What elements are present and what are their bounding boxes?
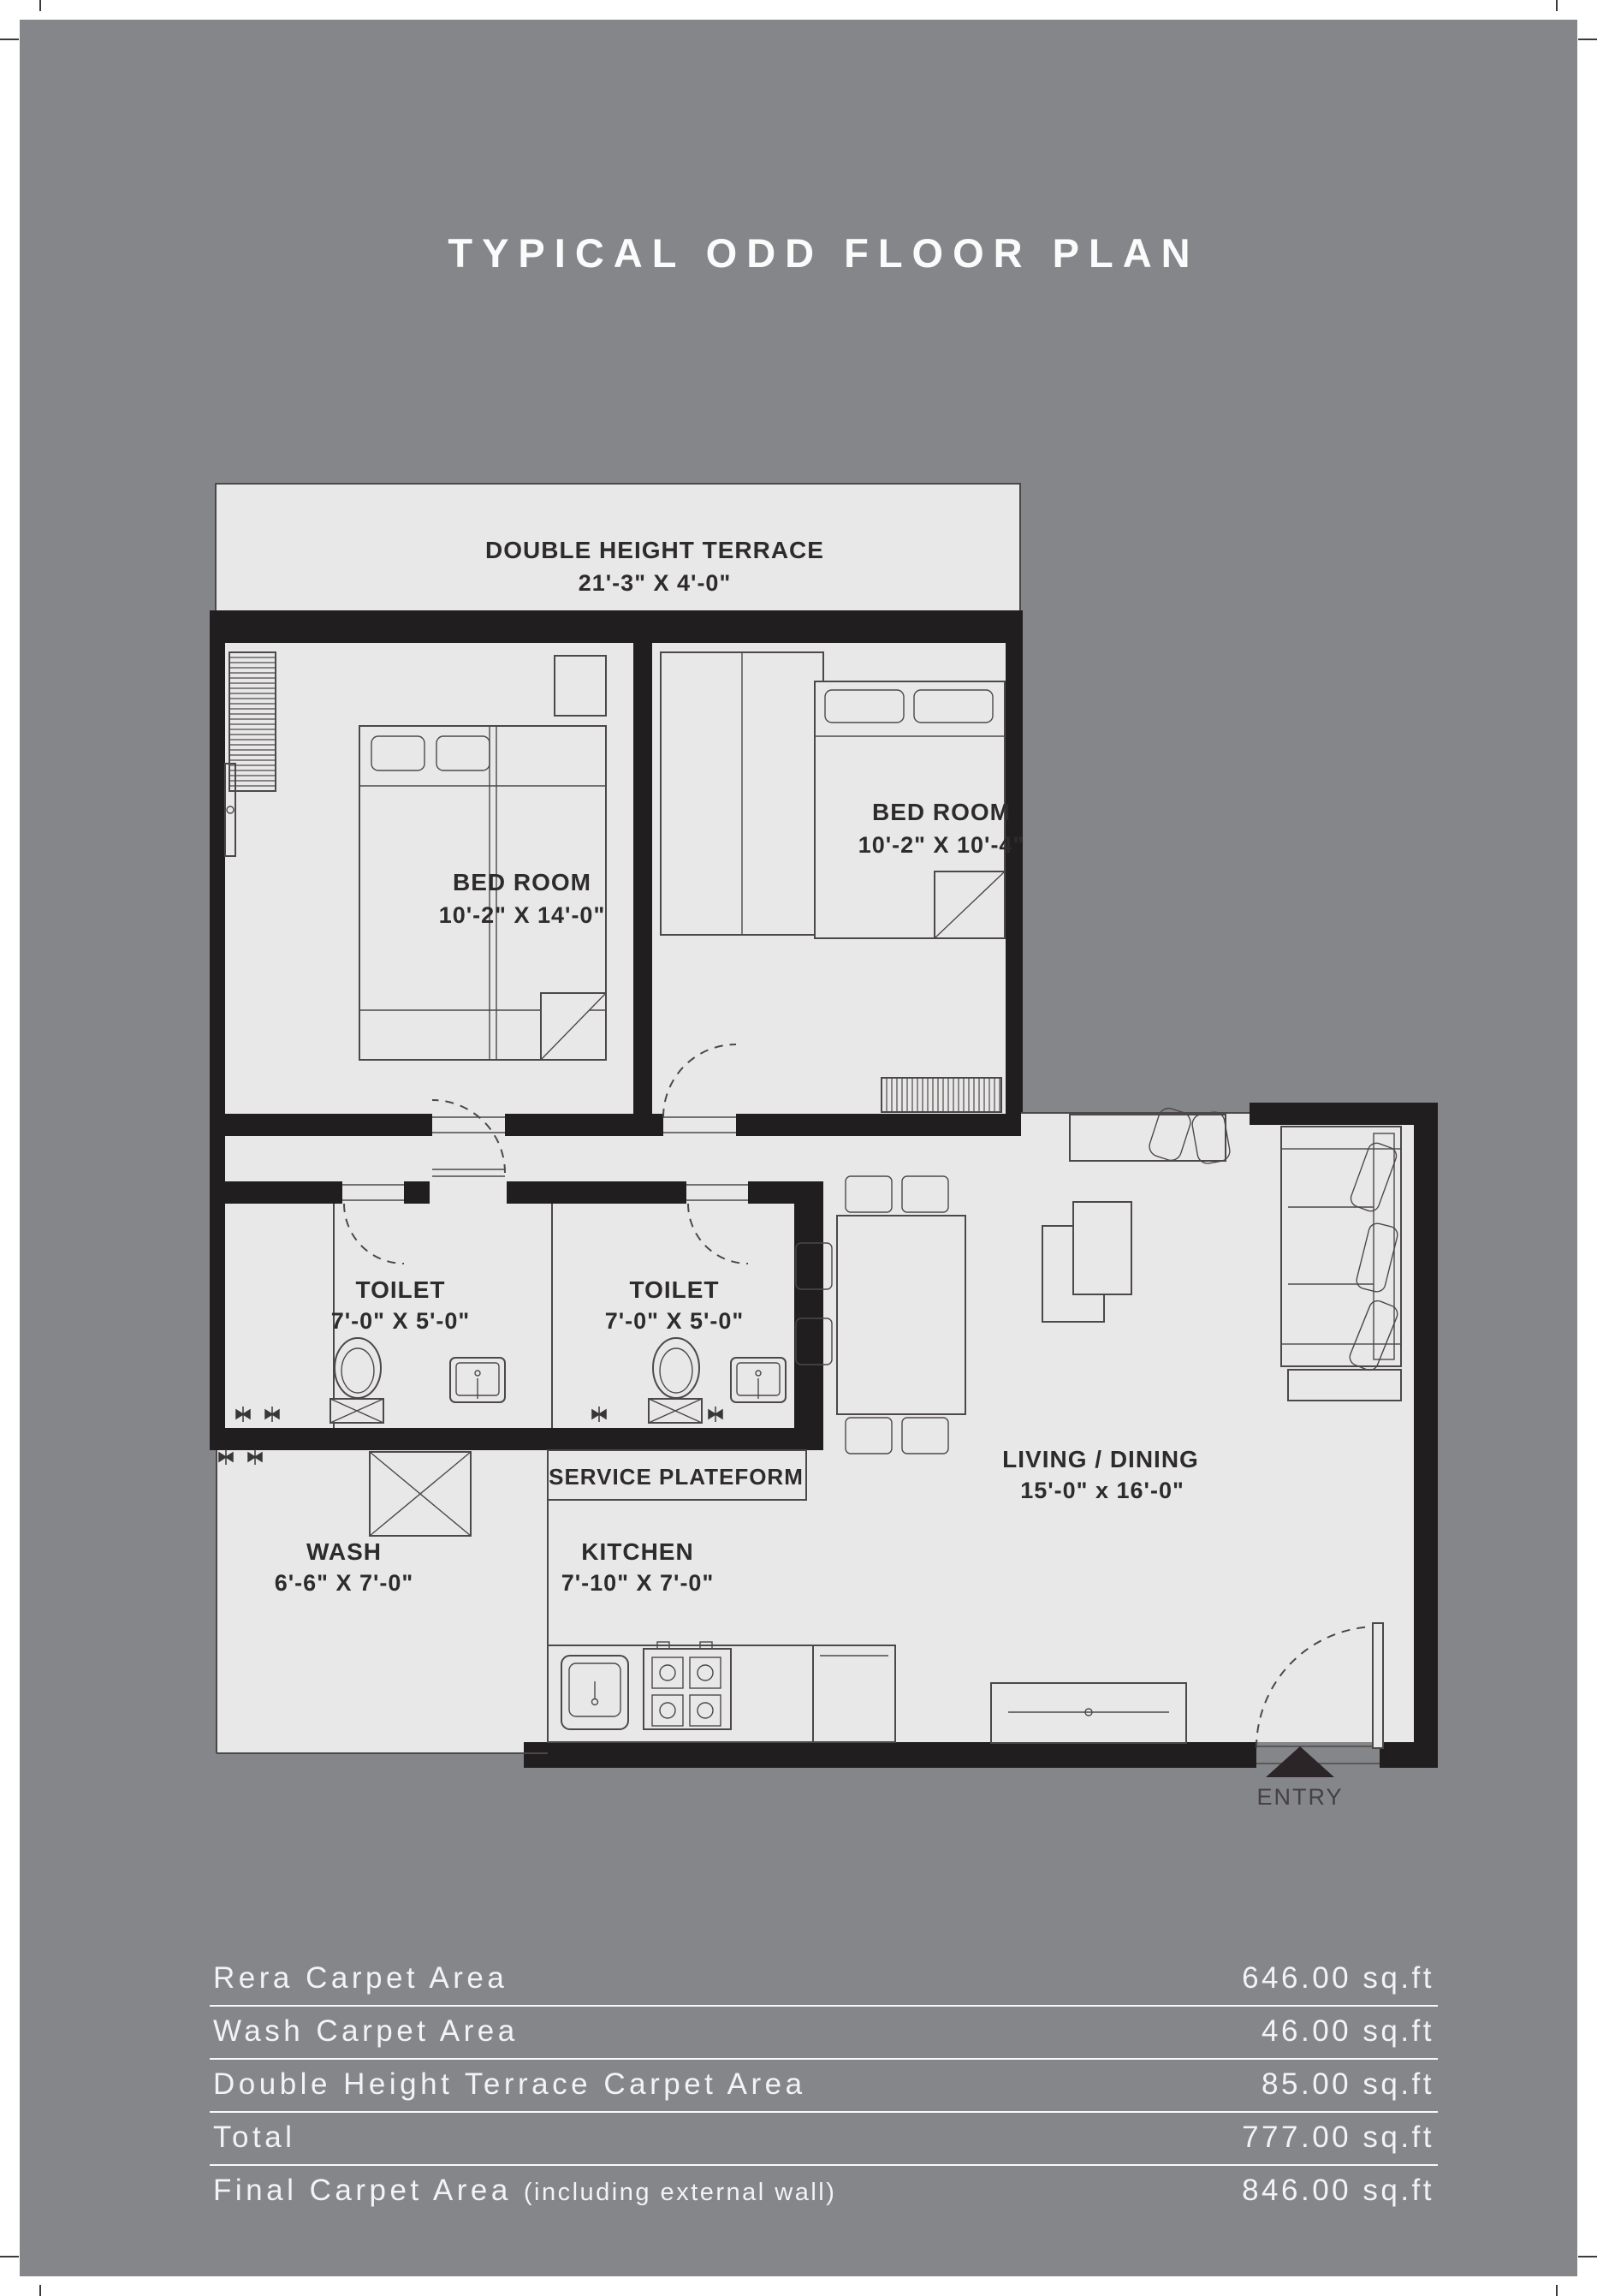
bedroom-left-dims: 10'-2" X 14'-0" [439, 902, 606, 928]
row-value: 85.00 sq.ft [1262, 2067, 1434, 2102]
table-row: Wash Carpet Area 46.00 sq.ft [210, 2007, 1438, 2060]
page-title: TYPICAL ODD FLOOR PLAN [210, 229, 1438, 277]
living-dining-dims: 15'-0" x 16'-0" [1020, 1478, 1184, 1503]
toilet-left-dims: 7'-0" X 5'-0" [331, 1308, 471, 1334]
crop-mark [1556, 0, 1558, 11]
crop-mark [1578, 2256, 1597, 2257]
crop-mark [39, 0, 41, 11]
floor-plan-page: { "title": "TYPICAL ODD FLOOR PLAN", "co… [0, 0, 1597, 2296]
wash-label: WASH [306, 1538, 382, 1565]
row-label: Final Carpet Area(including external wal… [213, 2174, 836, 2208]
row-label: Total [213, 2121, 295, 2155]
crop-mark [39, 2285, 41, 2296]
crop-mark [0, 39, 19, 40]
crop-mark [1556, 2285, 1558, 2296]
service-platform-label: SERVICE PLATEFORM [549, 1464, 804, 1490]
toilet-right-label: TOILET [629, 1276, 719, 1303]
living-dining-label: LIVING / DINING [1002, 1446, 1199, 1472]
entry-arrow-icon [1266, 1746, 1334, 1777]
console [1070, 1115, 1226, 1161]
sofa [1281, 1127, 1401, 1401]
table-row: Final Carpet Area(including external wal… [210, 2166, 1438, 2217]
nightstand-left-bedroom [555, 656, 606, 716]
wash-dims: 6'-6" X 7'-0" [275, 1570, 414, 1596]
row-value: 46.00 sq.ft [1262, 2014, 1434, 2049]
row-label: Double Height Terrace Carpet Area [213, 2067, 806, 2102]
table-row: Double Height Terrace Carpet Area 85.00 … [210, 2060, 1438, 2113]
crop-mark [1578, 39, 1597, 40]
kitchen-dims: 7'-10" X 7'-0" [561, 1570, 715, 1596]
window-right-bedroom [882, 1078, 1001, 1112]
toilet-left-label: TOILET [355, 1276, 445, 1303]
row-value: 646.00 sq.ft [1242, 1961, 1434, 1996]
crop-mark [0, 2256, 19, 2257]
bedroom-right-label: BED ROOM [872, 799, 1011, 825]
table-row: Rera Carpet Area 646.00 sq.ft [210, 1954, 1438, 2007]
tv-unit [991, 1683, 1186, 1743]
terrace-dims: 21'-3" X 4'-0" [579, 570, 732, 596]
dining-table [837, 1216, 965, 1414]
row-label-note: (including external wall) [524, 2179, 837, 2206]
kitchen-label: KITCHEN [581, 1538, 693, 1565]
kitchen-fixtures [548, 1642, 895, 1742]
toilet-right-dims: 7'-0" X 5'-0" [605, 1308, 745, 1334]
row-value: 846.00 sq.ft [1242, 2174, 1434, 2208]
refrigerator [813, 1645, 895, 1742]
row-label: Wash Carpet Area [213, 2014, 519, 2049]
entry-door-leaf [1373, 1623, 1383, 1748]
bedroom-right-dims: 10'-2" X 10'-4" [858, 832, 1025, 858]
floor-plan-drawing: DOUBLE HEIGHT TERRACE 21'-3" X 4'-0" BED… [205, 475, 1442, 1819]
sofa-side-table [1288, 1370, 1401, 1401]
table-row: Total 777.00 sq.ft [210, 2113, 1438, 2166]
hob [644, 1649, 731, 1729]
bedroom-left-label: BED ROOM [453, 869, 591, 895]
console-and-lounge [1070, 1106, 1232, 1165]
row-value: 777.00 sq.ft [1242, 2121, 1434, 2155]
entry-label: ENTRY [1256, 1784, 1343, 1810]
carpet-area-table: Rera Carpet Area 646.00 sq.ft Wash Carpe… [210, 1954, 1438, 2217]
row-label: Rera Carpet Area [213, 1961, 508, 1996]
terrace-label: DOUBLE HEIGHT TERRACE [485, 537, 824, 563]
